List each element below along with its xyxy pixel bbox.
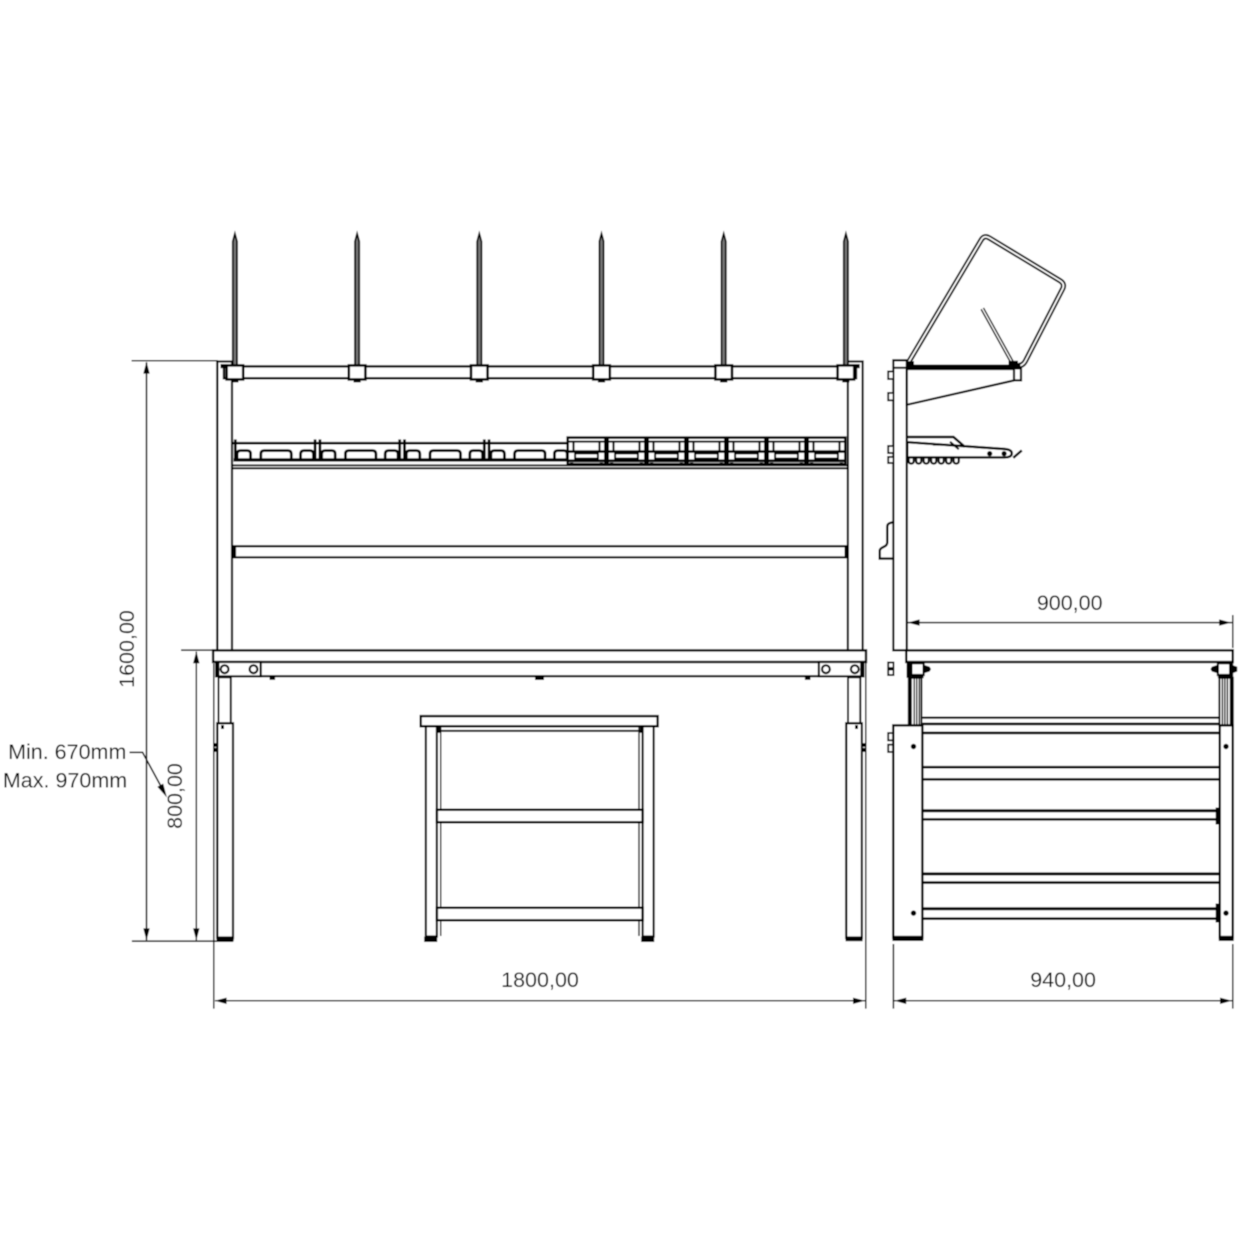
svg-text:900,00: 900,00 (1037, 591, 1103, 615)
svg-text:1800,00: 1800,00 (501, 968, 579, 992)
svg-text:800,00: 800,00 (163, 763, 187, 829)
svg-text:Max. 970mm: Max. 970mm (3, 769, 127, 793)
svg-text:Min. 670mm: Min. 670mm (8, 740, 126, 764)
svg-text:940,00: 940,00 (1030, 968, 1096, 992)
svg-text:1600,00: 1600,00 (115, 610, 139, 688)
